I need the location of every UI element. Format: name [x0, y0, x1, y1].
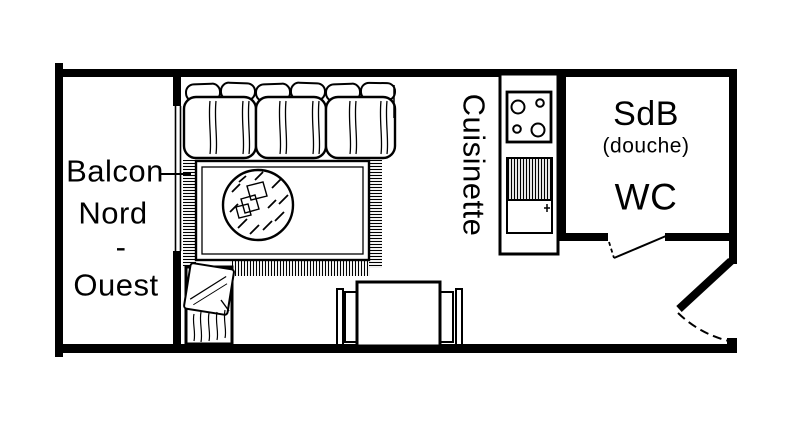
bathroom-sublabel: (douche) [603, 136, 690, 157]
rug-fringe-right [369, 160, 382, 268]
armchair [184, 263, 235, 344]
hall-wall-left [558, 233, 608, 241]
floor-plan: Balcon Nord - Ouest Cuisinette SdB (douc… [0, 0, 800, 428]
dining-set [337, 282, 462, 346]
balcony-divider-bottom [173, 251, 181, 346]
dining-chair-left [337, 289, 357, 345]
balcony-label-line1: Balcon [66, 156, 164, 187]
door-swing-dash [609, 242, 614, 258]
entrance-corner [727, 338, 737, 348]
drainer [507, 158, 552, 200]
hall-wall-right [665, 233, 737, 241]
dining-chair-right [440, 289, 462, 345]
bathroom-label: SdB [613, 97, 679, 131]
kitchenette-unit [500, 74, 558, 254]
bathroom-door [609, 236, 666, 258]
balcony-divider-top [173, 69, 181, 106]
door-leaf [614, 236, 666, 258]
sofa [184, 82, 395, 158]
wc-label: WC [615, 179, 678, 216]
balcony-label-line2: Nord [78, 198, 147, 229]
stove [507, 92, 551, 142]
kitchenette-label: Cuisinette [459, 94, 490, 237]
balcony-label-dash: - [116, 232, 127, 263]
entrance-door-swing [678, 313, 729, 341]
wall-top [57, 69, 737, 77]
sink-unit [507, 200, 552, 233]
dining-table [357, 282, 440, 346]
wall-left [55, 63, 63, 357]
rug-fringe-left [183, 160, 196, 268]
balcony-label-line3: Ouest [73, 270, 158, 301]
round-rug [223, 170, 293, 240]
rug-fringe-bottom [230, 261, 370, 276]
entrance-splay-wall [679, 261, 731, 309]
